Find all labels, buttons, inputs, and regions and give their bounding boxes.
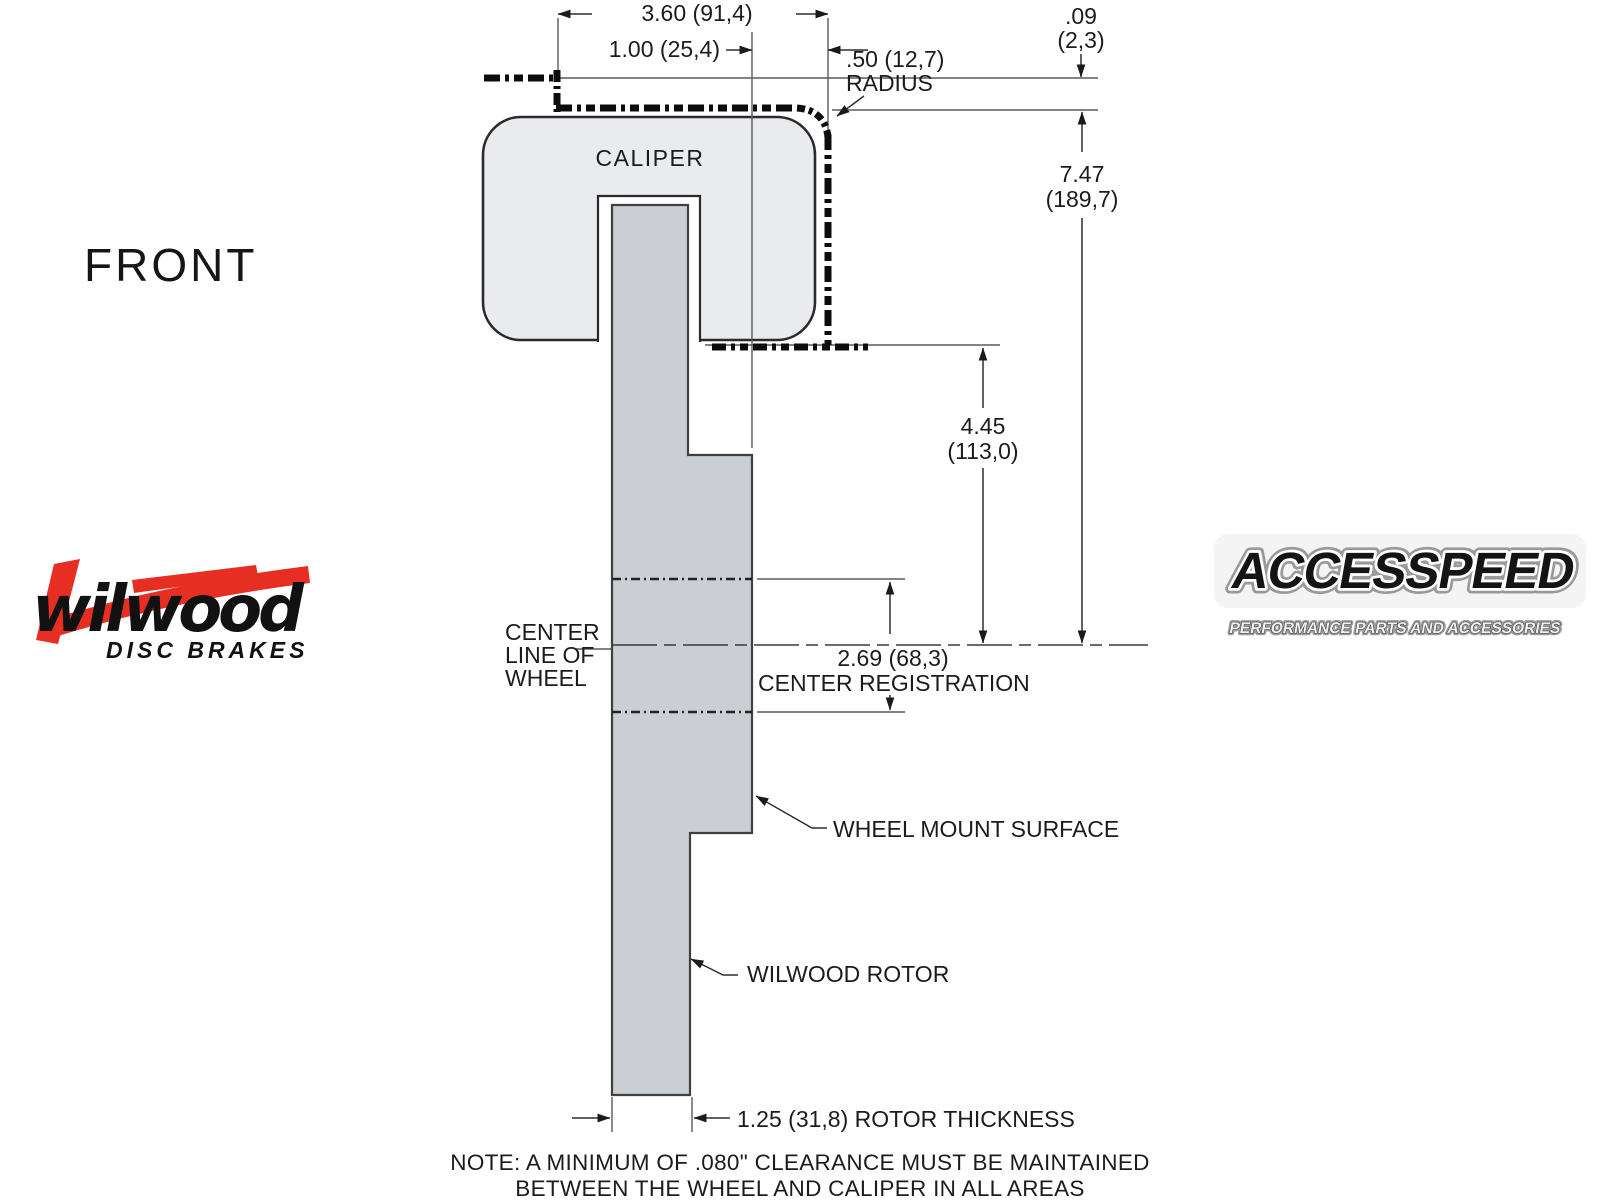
dim-caliper-to-centerline-mm: (113,0) [947,438,1018,464]
dim-overall-height-in: 7.47 [1060,161,1105,187]
dim-overall-height-mm: (189,7) [1046,186,1119,212]
radius-leader [837,96,864,116]
dim-corner-radius: .50 (12,7) [846,46,944,72]
clearance-note-line-2: BETWEEN THE WHEEL AND CALIPER IN ALL ARE… [515,1176,1084,1200]
center-line-label-3: WHEEL [505,665,587,691]
caliper-label: CALIPER [596,145,705,171]
caliper-rotor-cross-section: CALIPER 3.60 (91,4) 1.00 (25,4) .50 (12,… [0,0,1600,1200]
center-registration-label: CENTER REGISTRATION [758,670,1030,696]
dim-wheel-clearance-mm: (2,3) [1057,27,1104,53]
rotor-leader [691,959,738,975]
radius-label: RADIUS [846,70,933,96]
wheel-mount-surface-leader [756,796,827,828]
rotor-label: WILWOOD ROTOR [747,961,949,987]
dim-overall-width: 3.60 (91,4) [641,0,752,26]
dim-wheel-clearance-in: .09 [1065,3,1097,29]
dim-caliper-to-centerline-in: 4.45 [961,413,1006,439]
clearance-note-line-1: NOTE: A MINIMUM OF .080" CLEARANCE MUST … [450,1150,1149,1175]
wheel-mount-surface-label: WHEEL MOUNT SURFACE [833,816,1119,842]
dim-center-registration: 2.69 (68,3) [837,645,948,671]
dim-rotor-thickness: 1.25 (31,8) ROTOR THICKNESS [737,1106,1075,1132]
dim-mount-offset: 1.00 (25,4) [609,36,720,62]
technical-drawing-page: FRONT wilwood DISC BRAKES ACCESSPEED ACC… [0,0,1600,1200]
